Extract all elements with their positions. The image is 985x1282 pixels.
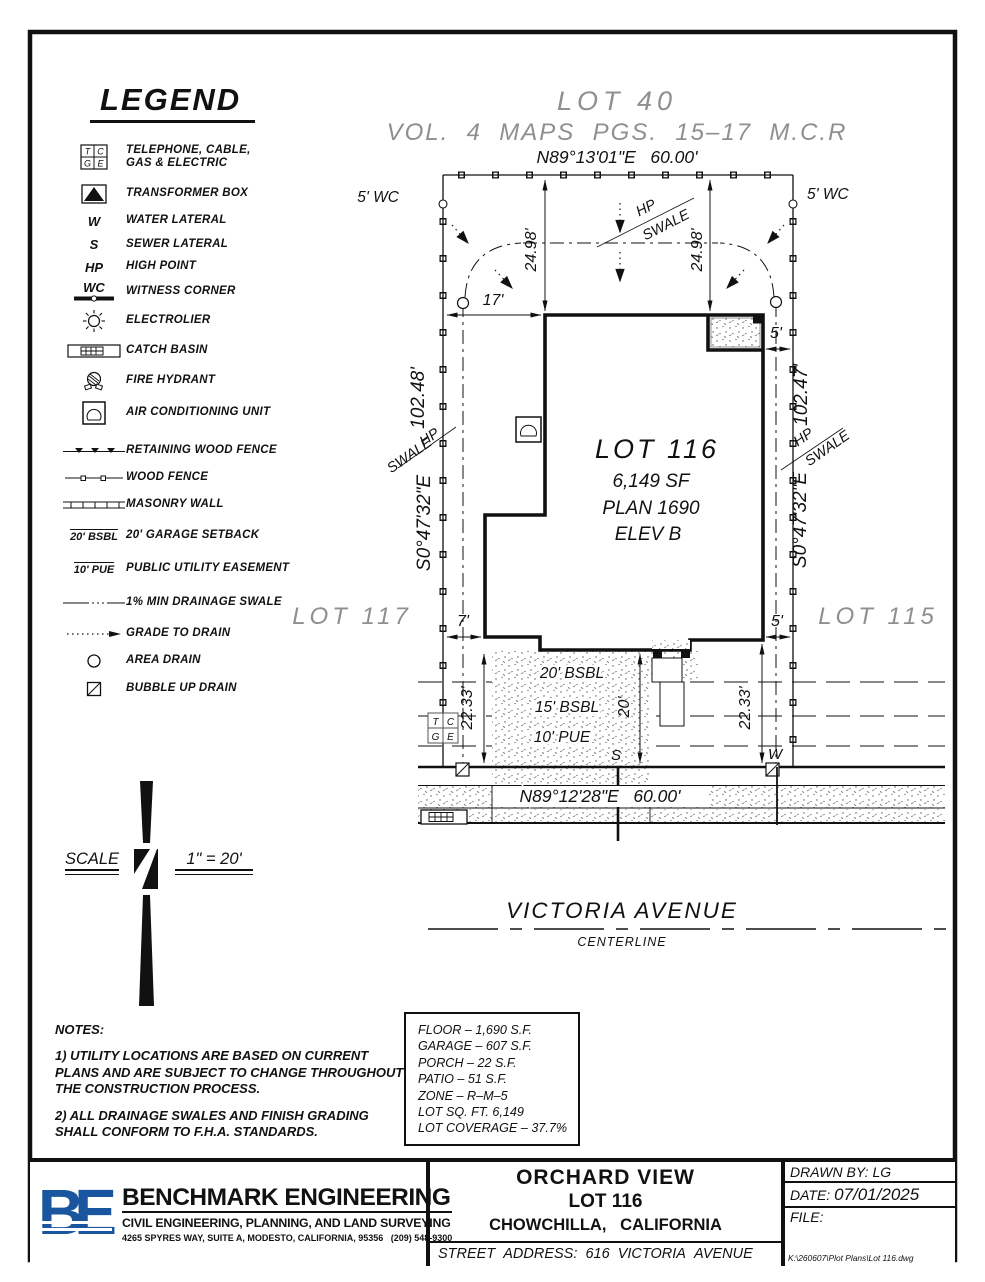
masonry-wall-icon	[62, 499, 126, 511]
table-row: GARAGE – 607 S.F.	[418, 1038, 568, 1054]
legend-item-fire-hydrant: FIRE HYDRANT	[62, 366, 372, 396]
title-block-project-cell: ORCHARD VIEW LOT 116 CHOWCHILLA, CALIFOR…	[430, 1162, 785, 1266]
scale-label: SCALE	[65, 850, 120, 868]
front-porch-hatch	[711, 318, 760, 347]
legend-item-catch-basin: CATCH BASIN	[62, 335, 372, 366]
svg-text:ELEV B: ELEV B	[615, 524, 682, 545]
svg-text:S0°47'32"E: S0°47'32"E	[790, 472, 811, 568]
notes-heading: NOTES:	[55, 1022, 407, 1038]
file-path: K:\260607\Plot Plans\Lot 116.dwg	[788, 1253, 914, 1263]
legend-item-ac-unit: AIR CONDITIONING UNIT	[62, 396, 372, 430]
note-1: 1) UTILITY LOCATIONS ARE BASED ON CURREN…	[55, 1048, 407, 1097]
street-name-label: VICTORIA AVENUE	[506, 898, 738, 923]
catch-basin-icon	[62, 343, 126, 359]
area-drain	[458, 298, 469, 309]
witness-corner-marker	[439, 200, 447, 208]
legend: LEGEND TCGE TELEPHONE, CABLE, GAS & ELEC…	[62, 82, 372, 703]
street-centerline: VICTORIA AVENUE CENTERLINE	[428, 898, 950, 949]
grade-to-drain-arrows	[452, 203, 784, 288]
svg-text:20': 20'	[616, 696, 633, 719]
map-reference-label: VOL. 4 MAPS PGS. 15–17 M.C.R	[387, 119, 848, 146]
witness-corner-symbol: WC	[62, 281, 126, 303]
svg-text:102.48': 102.48'	[408, 366, 429, 429]
legend-item-electrolier: ELECTROLIER	[62, 306, 372, 335]
svg-text:17': 17'	[483, 292, 505, 309]
bearing-top-label: N89°13'01"E 60.00'	[537, 147, 699, 167]
witness-corner-right-label: 5' WC	[807, 186, 850, 203]
svg-text:LOT 116: LOT 116	[595, 434, 719, 464]
lot-115-label: LOT 115	[818, 603, 938, 630]
svg-text:HP: HP	[634, 197, 660, 221]
wood-fence-icon	[62, 473, 126, 483]
svg-text:E: E	[447, 732, 454, 743]
drainage-swale-icon	[62, 599, 126, 607]
table-row: LOT SQ. FT. 6,149	[418, 1104, 568, 1120]
witness-corner-marker	[789, 200, 797, 208]
legend-item-sewer-lateral: S SEWER LATERAL	[62, 233, 372, 256]
svg-text:6,149 SF: 6,149 SF	[612, 471, 690, 492]
patio-step	[652, 658, 682, 682]
table-row: ZONE – R–M–5	[418, 1088, 568, 1104]
title-block-meta-cell: DRAWN BY: LG DATE: 07/01/2025 FILE: K:\2…	[785, 1162, 955, 1266]
file-label: FILE:	[790, 1209, 823, 1225]
table-row: FLOOR – 1,690 S.F.	[418, 1022, 568, 1038]
svg-text:22.33': 22.33'	[459, 686, 476, 731]
svg-text:102.47': 102.47'	[791, 363, 812, 426]
north-arrow	[134, 781, 158, 1006]
svg-text:5': 5'	[771, 613, 784, 630]
svg-text:C: C	[447, 717, 455, 728]
pue-symbol: 10' PUE	[62, 562, 126, 576]
company-name: BENCHMARK ENGINEERING	[122, 1185, 452, 1214]
company-tagline: CIVIL ENGINEERING, PLANNING, AND LAND SU…	[122, 1216, 452, 1230]
svg-text:T: T	[85, 147, 92, 157]
plot-plan-sheet: HP SWALE HP SWALE HP SWALE	[0, 0, 985, 1282]
grade-to-drain-icon	[62, 629, 126, 639]
date-label: DATE:	[790, 1187, 830, 1203]
drawn-by-label: DRAWN BY:	[790, 1164, 869, 1180]
project-city: CHOWCHILLA, CALIFORNIA	[430, 1216, 781, 1235]
legend-item-pue: 10' PUE PUBLIC UTILITY EASEMENT	[62, 552, 372, 586]
project-name: ORCHARD VIEW	[430, 1166, 781, 1190]
scale-value: 1" = 20'	[186, 850, 242, 868]
note-2: 2) ALL DRAINAGE SWALES AND FINISH GRADIN…	[55, 1108, 407, 1141]
title-block-company-cell: BE BENCHMARK ENGINEERING CIVIL ENGINEERI…	[30, 1162, 430, 1266]
water-lateral-label: W	[768, 746, 784, 763]
legend-item-retaining-wood-fence: RETAINING WOOD FENCE	[62, 436, 372, 465]
svg-text:PLAN 1690: PLAN 1690	[602, 498, 700, 519]
legend-item-wood-fence: WOOD FENCE	[62, 465, 372, 491]
svg-text:E: E	[97, 159, 104, 169]
svg-text:24.98': 24.98'	[523, 228, 540, 273]
notes-block: NOTES: 1) UTILITY LOCATIONS ARE BASED ON…	[55, 1022, 407, 1140]
area-drain-icon	[62, 652, 126, 670]
water-lateral-symbol: W	[62, 214, 126, 229]
sewer-lateral-label: S	[611, 747, 621, 764]
area-drain	[771, 297, 782, 308]
fire-hydrant-icon	[62, 370, 126, 392]
svg-text:G: G	[432, 732, 440, 743]
garage-setback-symbol: 20' BSBL	[62, 529, 126, 543]
title-block: BE BENCHMARK ENGINEERING CIVIL ENGINEERI…	[30, 1158, 955, 1266]
legend-item-grade-to-drain: GRADE TO DRAIN	[62, 619, 372, 648]
legend-item-water-lateral: W WATER LATERAL	[62, 209, 372, 233]
svg-text:15' BSBL: 15' BSBL	[535, 699, 599, 716]
ac-unit-icon	[62, 400, 126, 426]
svg-text:7': 7'	[457, 613, 470, 630]
high-point-symbol: HP	[62, 260, 126, 275]
transformer-icon	[62, 183, 126, 205]
legend-item-bubble-up-drain: BUBBLE UP DRAIN	[62, 674, 372, 703]
catch-basin	[421, 810, 467, 824]
svg-text:20' BSBL: 20' BSBL	[539, 665, 604, 682]
table-row: PATIO – 51 S.F.	[418, 1071, 568, 1087]
rear-porch-column	[681, 649, 690, 658]
svg-text:10' PUE: 10' PUE	[534, 729, 591, 746]
sewer-lateral-symbol: S	[62, 237, 126, 252]
svg-text:24.98': 24.98'	[689, 228, 706, 273]
drawn-by-value: LG	[872, 1164, 891, 1180]
rear-porch-column	[653, 649, 662, 658]
svg-text:T: T	[432, 717, 439, 728]
legend-item-masonry-wall: MASONRY WALL	[62, 491, 372, 519]
table-row: PORCH – 22 S.F.	[418, 1055, 568, 1071]
svg-text:SWALE: SWALE	[384, 435, 435, 477]
legend-item-witness-corner: WC WITNESS CORNER	[62, 278, 372, 306]
svg-text:22.33': 22.33'	[737, 686, 754, 731]
benchmark-logo: BE	[38, 1181, 114, 1247]
bearing-bottom-label: N89°12'28"E 60.00'	[520, 786, 682, 806]
legend-item-tcge: TCGE TELEPHONE, CABLE, GAS & ELECTRIC	[62, 135, 372, 179]
centerline-label: CENTERLINE	[577, 935, 666, 949]
tcge-icon: TCGE	[62, 143, 126, 171]
legend-item-garage-setback: 20' BSBL 20' GARAGE SETBACK	[62, 519, 372, 552]
svg-text:C: C	[97, 147, 104, 157]
porch-column	[753, 314, 763, 324]
electrolier-icon	[62, 308, 126, 334]
project-lot: LOT 116	[430, 1191, 781, 1213]
legend-title: LEGEND	[90, 82, 255, 123]
lot-40-label: LOT 40	[557, 86, 677, 116]
patio-walk	[660, 682, 684, 726]
legend-item-drainage-swale: 1% MIN DRAINAGE SWALE	[62, 586, 372, 619]
tcge-utility-box: T C G E	[428, 713, 458, 743]
date-value: 07/01/2025	[834, 1185, 919, 1204]
retaining-wood-fence-icon	[62, 446, 126, 456]
svg-text:G: G	[84, 159, 91, 169]
legend-item-transformer: TRANSFORMER BOX	[62, 179, 372, 209]
legend-item-high-point: HP HIGH POINT	[62, 256, 372, 278]
scale-block: SCALE 1" = 20'	[65, 781, 253, 1006]
table-row: LOT COVERAGE – 37.7%	[418, 1120, 568, 1136]
legend-item-area-drain: AREA DRAIN	[62, 648, 372, 674]
svg-text:S0°47'32"E: S0°47'32"E	[414, 475, 435, 571]
ac-unit	[516, 417, 541, 442]
street-address: STREET ADDRESS: 616 VICTORIA AVENUE	[430, 1241, 781, 1266]
company-address: 4265 SPYRES WAY, SUITE A, MODESTO, CALIF…	[122, 1233, 452, 1243]
svg-text:5': 5'	[770, 325, 783, 342]
bubble-up-drain-icon	[62, 680, 126, 698]
area-summary-table: FLOOR – 1,690 S.F. GARAGE – 607 S.F. POR…	[404, 1012, 580, 1146]
